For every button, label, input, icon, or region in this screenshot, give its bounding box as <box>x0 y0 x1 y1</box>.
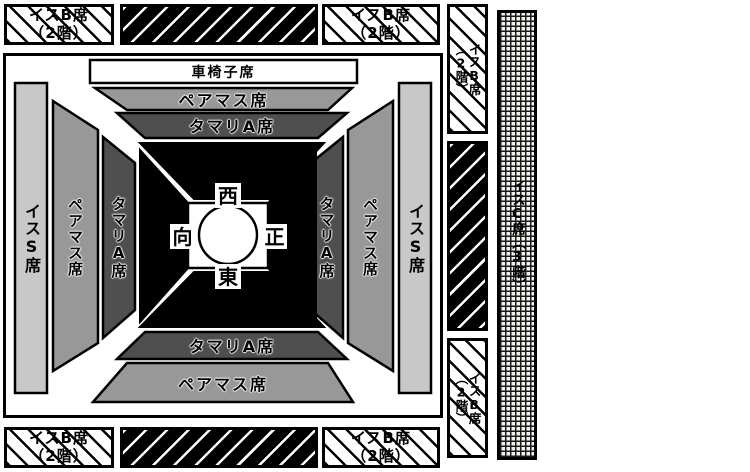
seat-tamari-a-left-label: タマリA席 <box>103 150 135 325</box>
seat-pair-masu-top[interactable] <box>95 88 352 110</box>
seat-pair-masu-right-label: ペアマス席 <box>348 120 393 353</box>
seat-wheelchair[interactable] <box>90 60 357 83</box>
dohyo-ring <box>199 206 257 264</box>
seat-pair-masu-bottom[interactable] <box>93 363 353 402</box>
seat-tamari-a-top[interactable] <box>117 113 347 138</box>
seat-tamari-a-right-label: タマリA席 <box>311 150 343 325</box>
sumo-arena-seat-map: イスB席（2階） イスB席（2階） イスB席（2階） イスB席（2階） イスB席… <box>0 0 750 472</box>
seat-pair-masu-left-label: ペアマス席 <box>53 120 98 353</box>
seat-isu-s-left-label: イスS席 <box>15 83 47 393</box>
seat-tamari-a-bottom[interactable] <box>117 332 347 359</box>
seat-isu-s-right-label: イスS席 <box>399 83 431 393</box>
